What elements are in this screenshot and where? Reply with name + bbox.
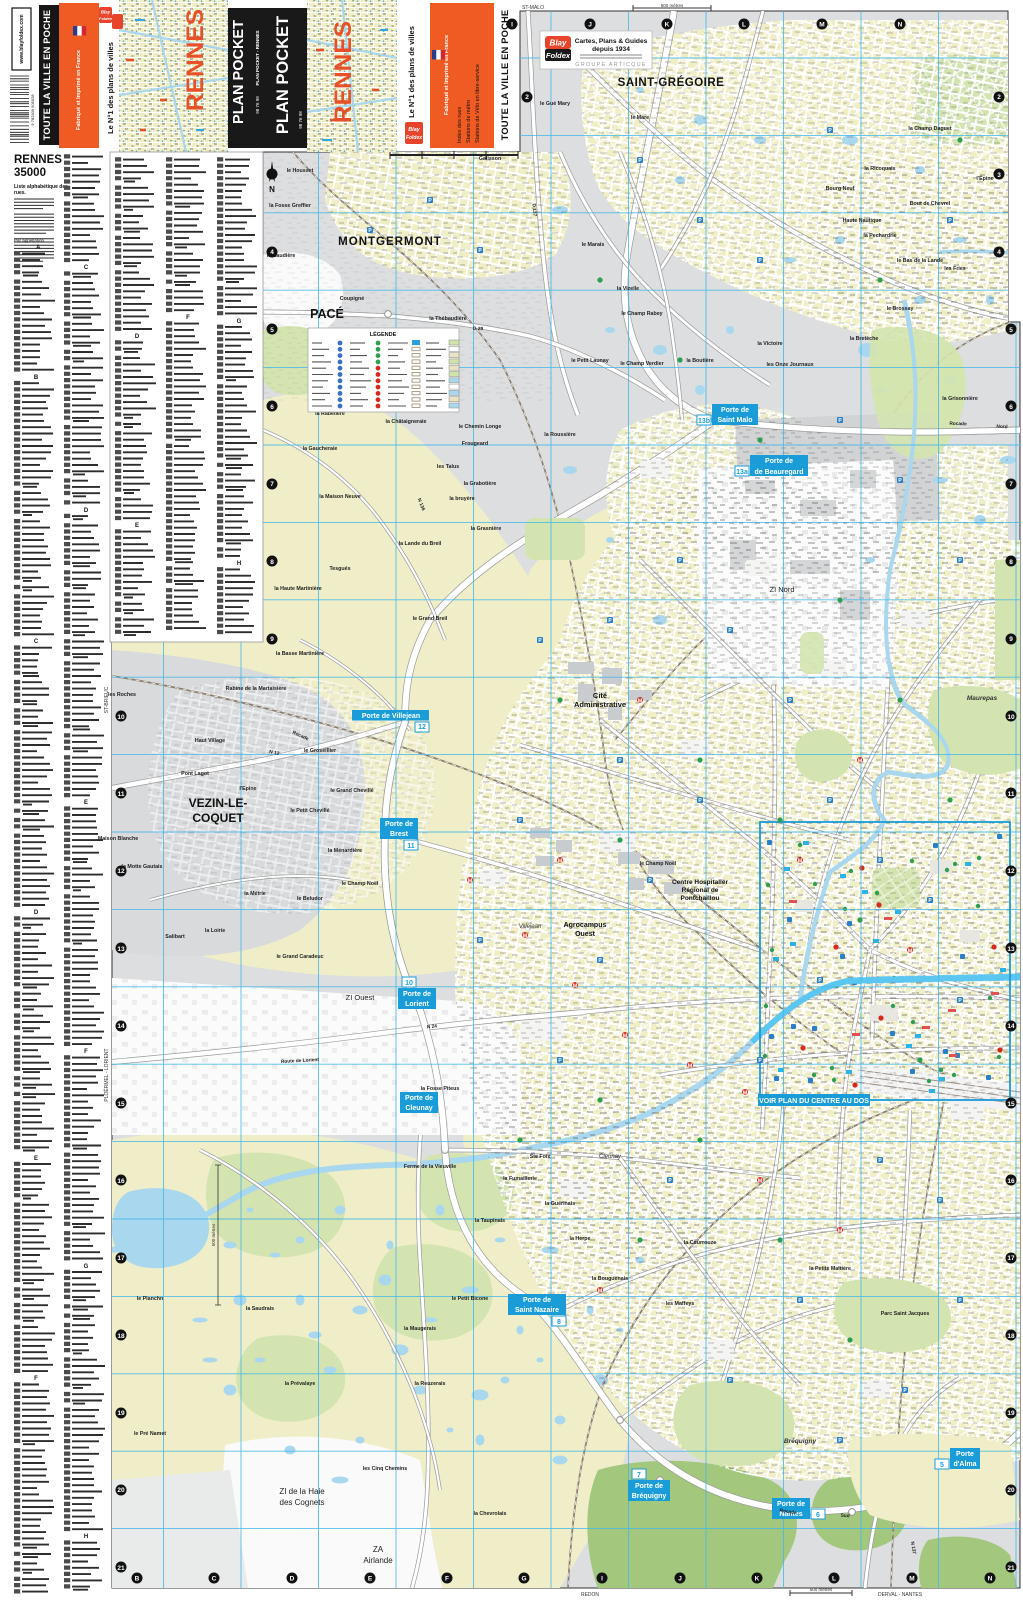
svg-text:K: K — [755, 1576, 760, 1583]
svg-text:Cleunay: Cleunay — [599, 1154, 622, 1160]
svg-text:Nord: Nord — [996, 424, 1007, 430]
svg-text:la Courrouze: la Courrouze — [684, 1240, 716, 1246]
svg-text:Ste Foix: Ste Foix — [530, 1154, 551, 1160]
svg-text:Bréquigny: Bréquigny — [784, 1438, 817, 1445]
svg-text:Foldex: Foldex — [99, 16, 113, 21]
svg-text:Sud: Sud — [840, 1513, 850, 1520]
svg-text:12: 12 — [1007, 868, 1015, 875]
svg-text:le Petit Chevillé: le Petit Chevillé — [290, 808, 329, 814]
svg-text:13a: 13a — [736, 469, 748, 476]
svg-text:les Onze Journaux: les Onze Journaux — [766, 362, 813, 368]
svg-text:N: N — [898, 22, 903, 29]
svg-text:les Talus: les Talus — [437, 464, 459, 470]
svg-text:F: F — [34, 1376, 38, 1382]
svg-text:Blay: Blay — [550, 39, 567, 48]
svg-text:Blay: Blay — [101, 10, 111, 15]
svg-text:M: M — [573, 983, 578, 989]
svg-text:la Herpe: la Herpe — [570, 1236, 591, 1242]
svg-text:M: M — [838, 1228, 843, 1234]
svg-text:la Motte Gautais: la Motte Gautais — [122, 864, 163, 870]
svg-text:L: L — [742, 22, 746, 29]
svg-text:le Pré Namet: le Pré Namet — [134, 1431, 166, 1437]
svg-text:3: 3 — [997, 172, 1001, 179]
svg-text:13: 13 — [1007, 946, 1015, 953]
svg-text:35000: 35000 — [14, 167, 46, 179]
svg-text:COQUET: COQUET — [192, 811, 244, 825]
svg-text:Index des rues: Index des rues — [457, 107, 463, 143]
svg-text:la Victoire: la Victoire — [757, 341, 782, 347]
svg-text:M: M — [598, 1288, 603, 1294]
svg-text:7: 7 — [1009, 481, 1013, 488]
svg-text:la Fosse Piteus: la Fosse Piteus — [421, 1086, 460, 1092]
svg-text:le Housset: le Housset — [287, 168, 314, 174]
svg-text:PLAN POCKET: PLAN POCKET — [274, 16, 292, 134]
svg-text:la Ricoquais: la Ricoquais — [864, 166, 895, 172]
svg-text:B: B — [34, 375, 39, 381]
svg-text:ZI de la Haie: ZI de la Haie — [279, 1487, 325, 1496]
svg-text:98 76 98: 98 76 98 — [298, 111, 303, 129]
svg-text:TOUTE LA VILLE EN POCHE: TOUTE LA VILLE EN POCHE — [500, 10, 510, 141]
svg-text:98 76 98: 98 76 98 — [255, 96, 260, 114]
svg-text:PLAN POCKET - RENNES: PLAN POCKET - RENNES — [255, 30, 260, 85]
svg-text:Stations de Vélo en libre-serv: Stations de Vélo en libre-service — [475, 64, 481, 143]
svg-text:17: 17 — [1007, 1255, 1015, 1262]
svg-text:de Beauregard: de Beauregard — [754, 469, 803, 476]
svg-text:GROUPE ARTICQUE: GROUPE ARTICQUE — [575, 62, 646, 68]
svg-text:TOUTE LA VILLE EN POCHE: TOUTE LA VILLE EN POCHE — [42, 10, 52, 141]
svg-text:le Grand Caradeuc: le Grand Caradeuc — [276, 954, 323, 960]
svg-text:G: G — [521, 1576, 526, 1583]
svg-text:ST-BRIEUC: ST-BRIEUC — [104, 686, 110, 713]
svg-text:500 mètres: 500 mètres — [810, 1587, 833, 1592]
svg-text:I: I — [511, 22, 513, 29]
svg-text:Bourg Neuf: Bourg Neuf — [826, 186, 855, 192]
svg-text:Rocade: Rocade — [949, 421, 967, 428]
svg-text:Ouest: Ouest — [575, 931, 596, 938]
svg-text:M: M — [743, 1090, 748, 1096]
svg-text:ZI Nord: ZI Nord — [769, 585, 794, 594]
svg-text:Par appellation: Par appellation — [14, 238, 45, 243]
svg-text:la Chevrolais: la Chevrolais — [474, 1511, 507, 1517]
svg-text:le Chemin Longe: le Chemin Longe — [459, 424, 502, 430]
svg-text:la Châtaigneraie: la Châtaigneraie — [386, 419, 427, 425]
svg-text:Porte de: Porte de — [777, 1501, 805, 1508]
svg-text:la Ménardière: la Ménardière — [328, 848, 362, 854]
svg-text:la Taupinais: la Taupinais — [475, 1218, 505, 1224]
svg-text:8: 8 — [270, 559, 274, 566]
svg-text:Brest: Brest — [390, 831, 409, 838]
svg-text:la Champ Daguet: la Champ Daguet — [908, 126, 952, 132]
svg-text:Blay: Blay — [408, 127, 421, 133]
svg-text:6: 6 — [1009, 404, 1013, 411]
svg-text:C: C — [84, 265, 89, 271]
svg-text:la Prévalaye: la Prévalaye — [285, 1381, 316, 1387]
svg-text:M: M — [858, 758, 863, 764]
svg-text:depuis 1934: depuis 1934 — [592, 46, 630, 53]
svg-text:G: G — [84, 1264, 89, 1270]
svg-text:E: E — [135, 523, 139, 529]
svg-text:5: 5 — [940, 1462, 944, 1469]
svg-text:la Grabotière: la Grabotière — [464, 481, 497, 487]
svg-text:13b: 13b — [698, 418, 710, 425]
svg-text:Galisson: Galisson — [479, 156, 501, 162]
svg-text:le Champ Verdier: le Champ Verdier — [620, 361, 663, 367]
svg-text:VOIR PLAN DU CENTRE AU DOS: VOIR PLAN DU CENTRE AU DOS — [759, 1098, 869, 1105]
svg-text:www.blayfoldex.com: www.blayfoldex.com — [19, 14, 25, 65]
svg-text:Lorient: Lorient — [405, 1001, 429, 1008]
svg-text:VEZIN-LE-: VEZIN-LE- — [189, 796, 248, 810]
svg-text:18: 18 — [117, 1333, 125, 1340]
svg-text:E: E — [34, 1156, 38, 1162]
svg-text:la Gaucheraie: la Gaucheraie — [303, 446, 338, 452]
svg-text:11: 11 — [407, 843, 415, 850]
svg-text:13: 13 — [117, 946, 125, 953]
svg-text:RENNES: RENNES — [182, 9, 209, 111]
svg-text:Pont Lagot: Pont Lagot — [181, 771, 209, 777]
svg-text:la Bretèche: la Bretèche — [850, 336, 879, 342]
svg-text:Cleunay: Cleunay — [405, 1105, 432, 1112]
svg-text:5: 5 — [1009, 327, 1013, 334]
svg-text:la Roussière: la Roussière — [544, 432, 576, 438]
svg-text:Pontchaillou: Pontchaillou — [681, 895, 720, 902]
svg-text:le Champ Noël: le Champ Noël — [342, 881, 379, 887]
svg-text:9: 9 — [270, 636, 274, 643]
svg-text:la bruyère: la bruyère — [449, 496, 474, 502]
svg-text:Porte de: Porte de — [765, 458, 793, 465]
svg-text:Porte: Porte — [956, 1451, 974, 1458]
svg-text:le Petit Launay: le Petit Launay — [571, 358, 608, 364]
svg-text:le Grand Chevillé: le Grand Chevillé — [330, 788, 373, 794]
svg-text:4: 4 — [997, 249, 1001, 256]
svg-text:ZI Ouest: ZI Ouest — [346, 993, 376, 1002]
svg-text:Cité: Cité — [593, 691, 607, 700]
svg-text:les Fries: les Fries — [944, 266, 966, 272]
svg-text:Haute Nautique: Haute Nautique — [843, 218, 882, 224]
svg-text:12: 12 — [117, 868, 125, 875]
svg-text:Stations de métro: Stations de métro — [466, 100, 472, 143]
svg-text:B: B — [135, 1576, 140, 1583]
svg-text:la Grasnière: la Grasnière — [471, 526, 502, 532]
svg-text:M: M — [798, 858, 803, 864]
svg-text:Saint Nazaire: Saint Nazaire — [515, 1307, 559, 1314]
svg-text:Saint Malo: Saint Malo — [717, 417, 752, 424]
svg-text:RENNES: RENNES — [14, 154, 62, 166]
svg-text:8: 8 — [1009, 559, 1013, 566]
svg-text:14: 14 — [1007, 1023, 1015, 1030]
svg-text:M: M — [758, 1178, 763, 1184]
svg-text:Coupigné: Coupigné — [340, 296, 364, 302]
svg-text:4: 4 — [270, 249, 274, 256]
svg-text:7: 7 — [270, 481, 274, 488]
svg-text:le Marais: le Marais — [582, 242, 605, 248]
svg-text:Foldex: Foldex — [406, 135, 422, 141]
svg-text:le Groseillier: le Groseillier — [304, 748, 336, 754]
svg-text:la Vizelle: la Vizelle — [617, 286, 639, 292]
svg-text:19: 19 — [117, 1410, 125, 1417]
svg-text:la Fumaillerie: la Fumaillerie — [503, 1176, 537, 1182]
svg-text:C: C — [34, 639, 39, 645]
svg-text:16: 16 — [117, 1178, 125, 1185]
svg-text:15: 15 — [117, 1101, 125, 1108]
svg-text:les Maffeys: les Maffeys — [666, 1301, 695, 1307]
svg-text:RENNES: RENNES — [330, 21, 357, 123]
svg-text:500 mètres: 500 mètres — [211, 1223, 216, 1246]
svg-text:Porte de: Porte de — [385, 821, 413, 828]
svg-text:le Champ Noël: le Champ Noël — [640, 861, 677, 867]
svg-text:les Cinq Chemins: les Cinq Chemins — [363, 1466, 407, 1472]
svg-text:11: 11 — [118, 791, 125, 798]
svg-text:PLOËRMEL - LORIENT: PLOËRMEL - LORIENT — [103, 1048, 110, 1101]
svg-text:11: 11 — [1008, 791, 1015, 798]
svg-text:15: 15 — [1007, 1101, 1015, 1108]
svg-text:le Champ Rabey: le Champ Rabey — [621, 311, 662, 317]
svg-text:10: 10 — [1007, 714, 1015, 721]
svg-text:Ferme de la Vieuville: Ferme de la Vieuville — [404, 1164, 456, 1170]
svg-text:PLAN POCKET: PLAN POCKET — [231, 20, 247, 124]
svg-text:12: 12 — [418, 724, 426, 731]
svg-text:500 mètres: 500 mètres — [661, 3, 684, 8]
svg-text:la Métrie: la Métrie — [244, 891, 266, 897]
svg-text:Fabriqué et Imprimé en France: Fabriqué et Imprimé en France — [444, 35, 450, 115]
svg-text:D: D — [135, 334, 140, 340]
svg-text:le Bas de la Lande: le Bas de la Lande — [897, 258, 943, 264]
svg-text:G: G — [237, 319, 242, 325]
svg-text:Bout de Chevrel: Bout de Chevrel — [910, 201, 951, 207]
svg-text:la Reuzerais: la Reuzerais — [415, 1381, 446, 1387]
svg-text:la Loirie: la Loirie — [205, 928, 225, 934]
svg-text:l'Epine: l'Epine — [239, 786, 256, 792]
svg-text:N 24: N 24 — [427, 1024, 438, 1031]
svg-text:M: M — [819, 22, 824, 29]
svg-text:Centre Hospitalier: Centre Hospitalier — [672, 879, 728, 886]
svg-text:Parc Saint Jacques: Parc Saint Jacques — [881, 1311, 930, 1317]
svg-text:7: 7 — [637, 1472, 641, 1479]
svg-text:la Basse Martinière: la Basse Martinière — [276, 651, 324, 657]
svg-text:DERVAL - NANTES: DERVAL - NANTES — [878, 1592, 923, 1598]
svg-text:la Maison Neuve: la Maison Neuve — [319, 494, 361, 500]
svg-text:d'Alma: d'Alma — [953, 1461, 976, 1468]
svg-text:le Petit Bicone: le Petit Bicone — [452, 1296, 489, 1302]
svg-text:18: 18 — [1007, 1333, 1015, 1340]
svg-text:Régional de: Régional de — [682, 887, 719, 894]
svg-text:Maison Blanche: Maison Blanche — [98, 836, 138, 842]
svg-text:M: M — [909, 1576, 914, 1583]
svg-text:la Bouguenais: la Bouguenais — [592, 1276, 628, 1282]
svg-text:A: A — [36, 245, 41, 251]
svg-text:K: K — [665, 22, 670, 29]
svg-text:D 29: D 29 — [473, 326, 484, 333]
svg-text:la Lande du Breil: la Lande du Breil — [399, 541, 442, 547]
svg-text:6: 6 — [816, 1512, 820, 1519]
svg-text:H: H — [84, 1534, 88, 1540]
svg-text:Porte de: Porte de — [635, 1483, 663, 1490]
svg-text:20: 20 — [117, 1487, 125, 1494]
svg-text:Porte de: Porte de — [403, 991, 431, 998]
svg-text:le Beludor: le Beludor — [297, 896, 323, 902]
svg-text:5: 5 — [270, 327, 274, 334]
svg-text:la Guérinais: la Guérinais — [545, 1201, 575, 1207]
svg-text:M: M — [623, 1033, 628, 1039]
svg-text:16: 16 — [1007, 1178, 1015, 1185]
svg-text:la Saudrais: la Saudrais — [246, 1306, 274, 1312]
svg-text:l'Épine: l'Épine — [976, 174, 993, 182]
svg-text:Rabine de la Martaisière: Rabine de la Martaisière — [226, 686, 287, 692]
svg-text:MONTGERMONT: MONTGERMONT — [338, 236, 442, 248]
svg-text:Haut Village: Haut Village — [195, 738, 225, 744]
svg-text:M: M — [523, 933, 528, 939]
svg-text:rues.: rues. — [14, 190, 27, 196]
svg-text:N: N — [269, 185, 275, 194]
svg-text:le Planchn: le Planchn — [137, 1296, 164, 1302]
svg-text:F: F — [186, 315, 190, 321]
svg-text:Porte de: Porte de — [523, 1297, 551, 1304]
svg-text:ZA: ZA — [373, 1545, 384, 1554]
svg-text:la Grisonnière: la Grisonnière — [942, 396, 978, 402]
svg-text:F: F — [84, 1049, 88, 1055]
svg-text:la Pechardrie: la Pechardrie — [863, 233, 896, 239]
svg-text:10: 10 — [117, 714, 125, 721]
svg-text:Porte de: Porte de — [405, 1095, 433, 1102]
svg-text:ST-MALO: ST-MALO — [522, 5, 544, 11]
svg-text:D: D — [84, 508, 89, 514]
svg-text:20: 20 — [1007, 1487, 1015, 1494]
svg-text:la Petite Maltière: la Petite Maltière — [809, 1266, 851, 1272]
svg-text:la Thébaudière: la Thébaudière — [429, 316, 466, 322]
svg-text:le Gué Mary: le Gué Mary — [540, 101, 570, 107]
svg-text:21: 21 — [1007, 1565, 1015, 1572]
svg-text:Villejean: Villejean — [519, 924, 542, 930]
svg-text:la Maugerais: la Maugerais — [404, 1326, 436, 1332]
svg-text:le Brossay: le Brossay — [887, 306, 914, 312]
svg-text:14: 14 — [117, 1023, 125, 1030]
svg-text:J: J — [678, 1576, 682, 1583]
svg-text:Airlande: Airlande — [363, 1556, 393, 1565]
svg-text:la Boutière: la Boutière — [686, 358, 713, 364]
svg-text:Maurepas: Maurepas — [967, 695, 998, 702]
svg-text:Le N°1 des plans de villes: Le N°1 des plans de villes — [407, 26, 416, 118]
svg-text:2: 2 — [997, 94, 1001, 101]
svg-text:M: M — [638, 698, 643, 704]
svg-text:N: N — [988, 1576, 993, 1583]
svg-text:des Cognets: des Cognets — [280, 1498, 325, 1507]
svg-text:Fabriqué et Imprimé en France: Fabriqué et Imprimé en France — [76, 50, 82, 130]
svg-text:Frougeard: Frougeard — [462, 441, 488, 447]
svg-text:M: M — [908, 948, 913, 954]
svg-text:D: D — [290, 1576, 295, 1583]
svg-text:2: 2 — [525, 94, 529, 101]
svg-text:Porte de: Porte de — [721, 407, 749, 414]
svg-text:PACÉ: PACÉ — [310, 306, 344, 321]
svg-text:E: E — [368, 1576, 373, 1583]
svg-text:M: M — [688, 1063, 693, 1069]
svg-text:la Haute Martinière: la Haute Martinière — [274, 586, 321, 592]
svg-text:Administrative: Administrative — [574, 700, 626, 709]
svg-text:Cartes, Plans & Guides: Cartes, Plans & Guides — [575, 38, 648, 45]
svg-text:10: 10 — [405, 980, 413, 987]
svg-text:Bréquigny: Bréquigny — [632, 1493, 667, 1500]
svg-text:8: 8 — [557, 1319, 561, 1326]
svg-text:I: I — [601, 1576, 603, 1583]
svg-text:le Mare: le Mare — [631, 115, 649, 121]
svg-text:L: L — [832, 1576, 836, 1583]
svg-text:D: D — [34, 910, 39, 916]
svg-text:M: M — [468, 878, 473, 884]
svg-text:Agrocampus: Agrocampus — [564, 922, 607, 929]
svg-text:9: 9 — [1009, 636, 1013, 643]
svg-text:F: F — [445, 1576, 449, 1583]
svg-text:le Grand Breil: le Grand Breil — [413, 616, 448, 622]
svg-text:REDON: REDON — [581, 1592, 599, 1598]
svg-text:J: J — [588, 22, 592, 29]
svg-text:les Roches: les Roches — [108, 692, 136, 698]
svg-text:Salibart: Salibart — [165, 934, 185, 940]
svg-text:E: E — [84, 800, 88, 806]
svg-text:la Fosse Greffier: la Fosse Greffier — [269, 203, 311, 209]
svg-text:6: 6 — [270, 404, 274, 411]
svg-text:C: C — [212, 1576, 217, 1583]
svg-text:LÉGENDE: LÉGENDE — [370, 330, 397, 338]
svg-text:21: 21 — [117, 1565, 125, 1572]
svg-text:9 782309 505028: 9 782309 505028 — [30, 94, 35, 126]
svg-text:Foldex: Foldex — [546, 51, 571, 60]
svg-text:Porte de Villejean: Porte de Villejean — [362, 713, 420, 720]
svg-text:19: 19 — [1007, 1410, 1015, 1417]
svg-text:Le N°1 des plans de villes: Le N°1 des plans de villes — [106, 42, 115, 134]
svg-text:SAINT-GRÉGOIRE: SAINT-GRÉGOIRE — [618, 76, 725, 89]
svg-text:M: M — [558, 858, 563, 864]
svg-text:H: H — [237, 561, 241, 567]
svg-text:17: 17 — [117, 1255, 125, 1262]
svg-text:Tesgués: Tesgués — [329, 566, 350, 572]
svg-text:D 137: D 137 — [530, 203, 537, 217]
